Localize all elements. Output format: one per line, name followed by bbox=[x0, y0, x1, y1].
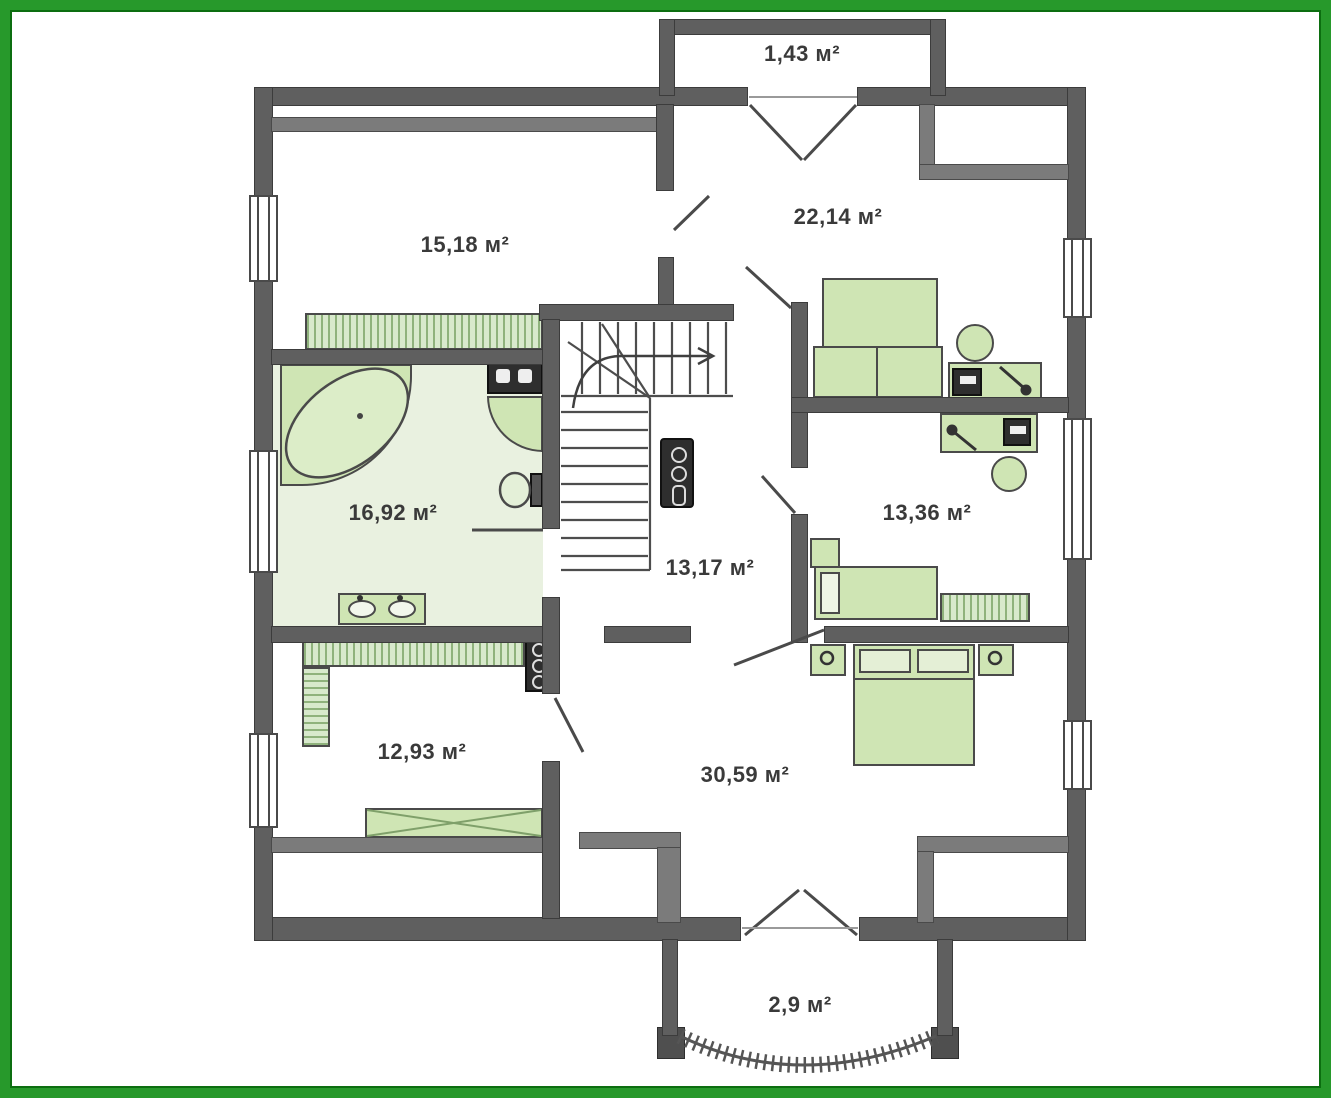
balcony-railing bbox=[680, 1036, 936, 1065]
bench-x-pattern bbox=[367, 810, 541, 836]
room-area-label: 15,18 м² bbox=[421, 232, 510, 258]
tap-icon bbox=[357, 595, 363, 601]
room-area-label: 16,92 м² bbox=[349, 500, 438, 526]
toilet-icon bbox=[500, 473, 530, 507]
bathtub-oval-icon bbox=[266, 347, 428, 499]
plan-linework bbox=[10, 10, 1331, 1098]
room-area-label: 22,14 м² bbox=[794, 204, 883, 230]
room-area-label: 13,17 м² bbox=[666, 555, 755, 581]
stair-direction-arrow bbox=[573, 348, 713, 408]
table-lamp-icon bbox=[821, 652, 1001, 664]
desk-lamp-icon bbox=[948, 367, 1030, 450]
room-area-label: 30,59 м² bbox=[701, 762, 790, 788]
tap-icon bbox=[397, 595, 403, 601]
floor-plan: 1,43 м² 15,18 м² 22,14 м² 16,92 м² 13,36… bbox=[0, 0, 1331, 1098]
room-area-label: 13,36 м² bbox=[883, 500, 972, 526]
room-area-label: 1,43 м² bbox=[764, 41, 840, 67]
room-area-label: 2,9 м² bbox=[768, 992, 831, 1018]
room-area-label: 12,93 м² bbox=[378, 739, 467, 765]
